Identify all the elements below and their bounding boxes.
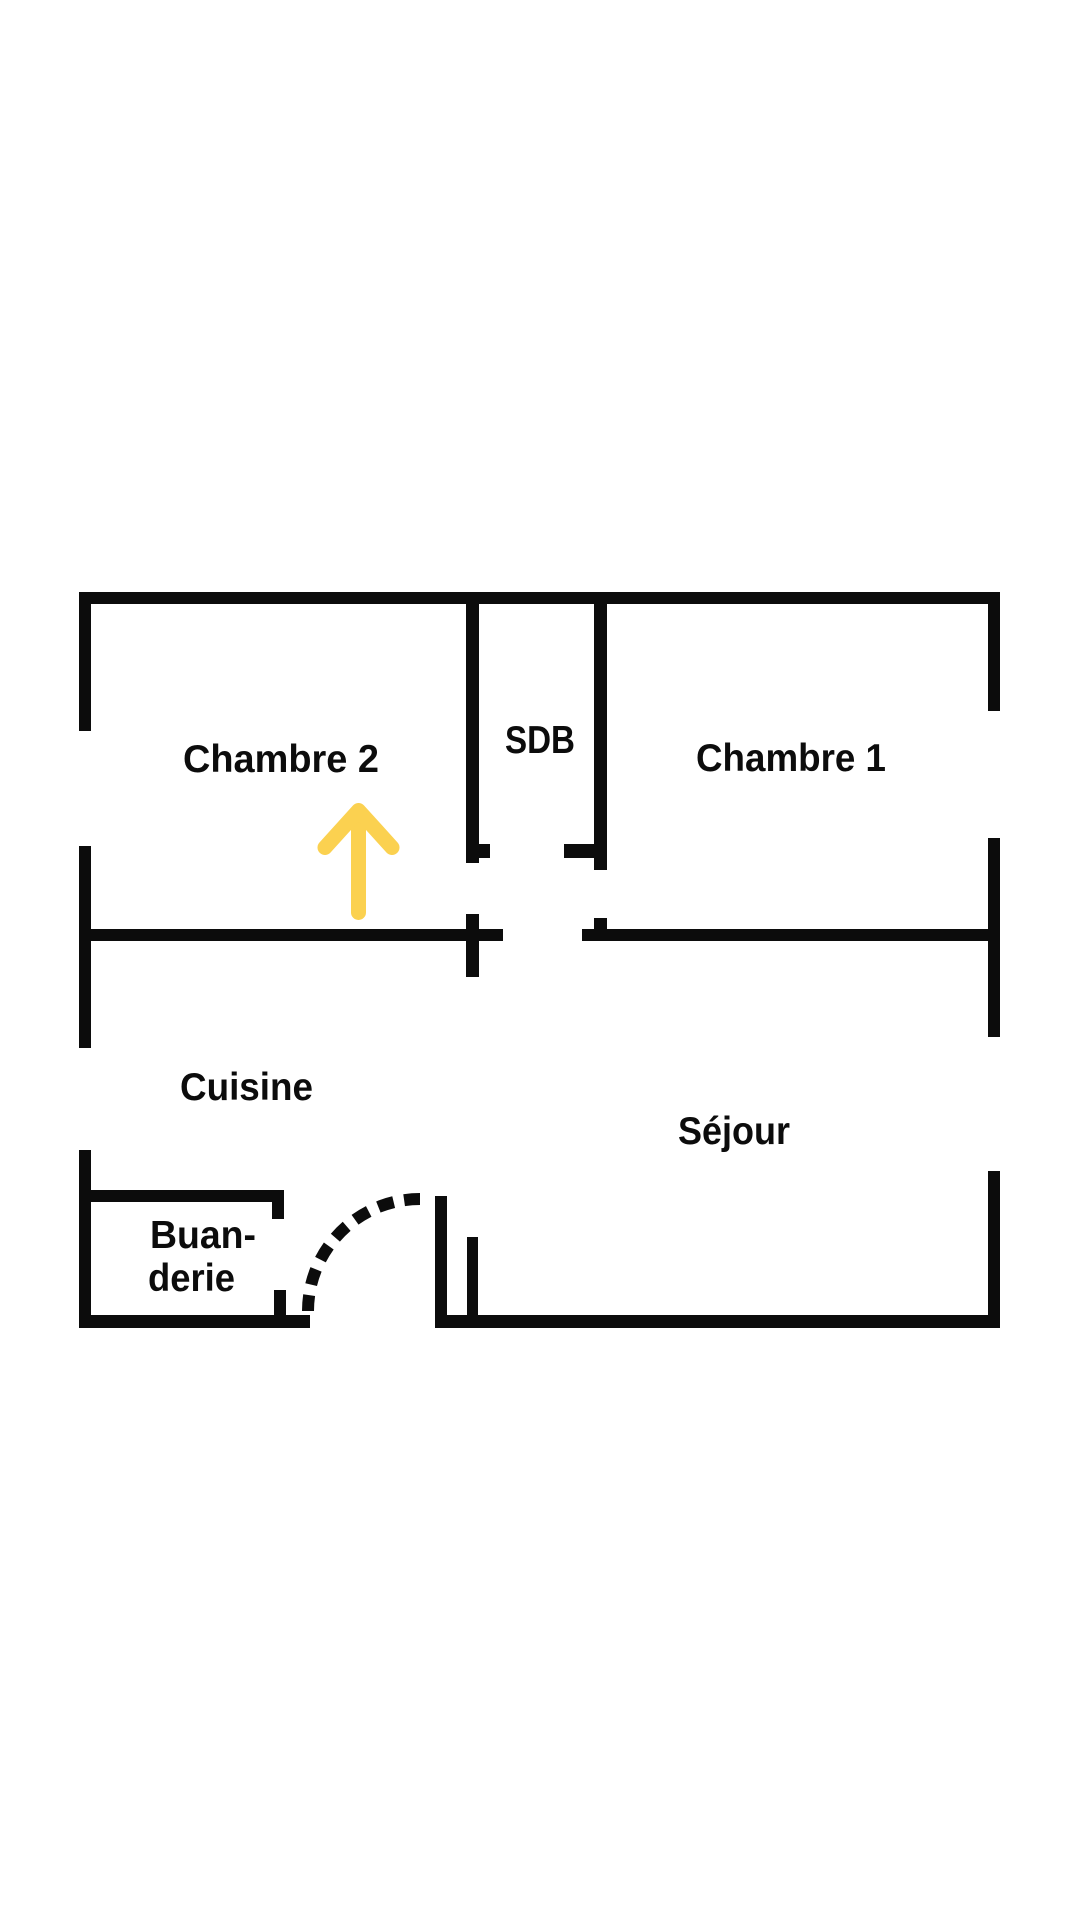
svg-text:Chambre 2: Chambre 2 [183,738,379,781]
svg-text:Chambre 1: Chambre 1 [696,737,886,780]
svg-text:Cuisine: Cuisine [180,1066,313,1109]
svg-text:Buan-: Buan- [150,1214,256,1257]
svg-text:SDB: SDB [505,719,575,762]
svg-text:Séjour: Séjour [678,1110,790,1153]
svg-text:derie: derie [148,1257,235,1300]
